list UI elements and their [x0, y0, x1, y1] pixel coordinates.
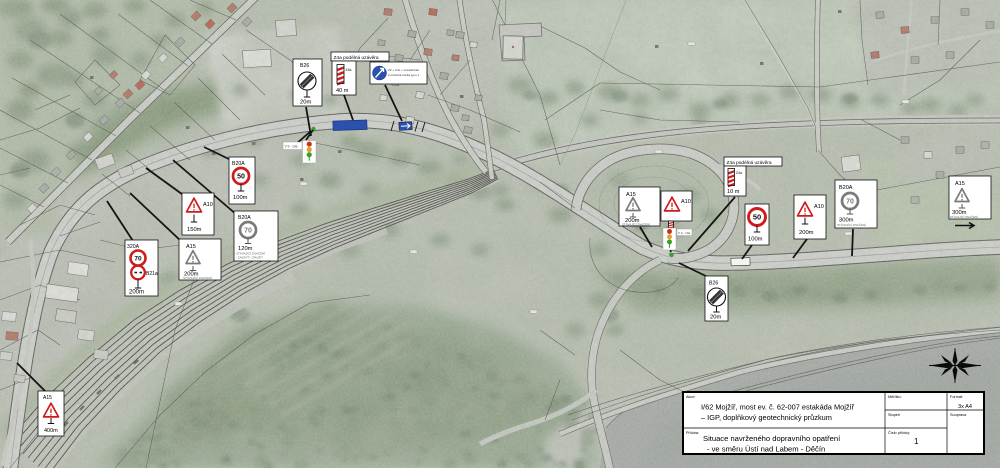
svg-text:3x A4: 3x A4 — [958, 404, 972, 410]
svg-text:Z4a: Z4a — [736, 171, 742, 175]
svg-text:B20A: B20A — [232, 161, 245, 167]
svg-text:10 m: 10 m — [727, 189, 740, 195]
svg-text:V 9 - 10a: V 9 - 10a — [285, 144, 298, 148]
svg-text:Formát:: Formát: — [950, 395, 963, 399]
svg-text:STÁVAJÍCÍ ZNAČENÍ: STÁVAJÍCÍ ZNAČENÍ — [622, 221, 650, 226]
svg-text:20m: 20m — [710, 315, 721, 321]
svg-text:200m: 200m — [799, 230, 814, 236]
svg-text:70: 70 — [846, 199, 854, 206]
svg-text:B26: B26 — [300, 63, 309, 69]
svg-text:A10: A10 — [203, 202, 213, 208]
svg-text:70: 70 — [244, 228, 252, 235]
svg-text:A10: A10 — [814, 204, 824, 210]
svg-text:STÁVAJÍCÍ ZNAČENÍ: STÁVAJÍCÍ ZNAČENÍ — [183, 275, 212, 280]
svg-text:20m: 20m — [300, 100, 311, 106]
svg-text:STÁVAJÍCÍ ZNAČENÍ: STÁVAJÍCÍ ZNAČENÍ — [950, 214, 978, 219]
svg-text:B21a: B21a — [146, 271, 158, 277]
svg-text:A10: A10 — [681, 199, 691, 205]
svg-text:STÁVAJÍCÍ ZNAČENÍ: STÁVAJÍCÍ ZNAČENÍ — [837, 222, 866, 227]
svg-text:200m: 200m — [129, 290, 144, 296]
svg-text:B20A: B20A — [238, 215, 251, 221]
svg-text:320A: 320A — [127, 244, 140, 250]
svg-text:A15: A15 — [955, 181, 965, 187]
svg-text:100m: 100m — [233, 195, 248, 201]
svg-text:Z4a podélná uzávěra: Z4a podélná uzávěra — [334, 55, 379, 61]
svg-text:1: 1 — [914, 437, 919, 446]
svg-text:Stupeň: Stupeň — [888, 413, 900, 417]
svg-text:40 m: 40 m — [336, 88, 349, 94]
svg-text:A15: A15 — [43, 395, 52, 401]
svg-text:Situace navrženého dopravního: Situace navrženého dopravního opatření — [703, 434, 841, 443]
svg-text:I/62 Mojžíř, most ev. č. 62-00: I/62 Mojžíř, most ev. č. 62-007 estakáda… — [701, 403, 855, 412]
svg-text:- ve směru Ústí nad Labem - Dě: - ve směru Ústí nad Labem - Děčín — [707, 445, 825, 454]
svg-text:Příloha:: Příloha: — [686, 431, 699, 435]
svg-text:70: 70 — [134, 255, 142, 262]
svg-text:50: 50 — [753, 213, 761, 222]
svg-text:150m: 150m — [187, 227, 202, 233]
svg-text:Z4a: Z4a — [346, 68, 352, 72]
svg-text:Číslo přílohy:: Číslo přílohy: — [888, 430, 910, 435]
svg-text:– IGP, doplňkový geotechnický: – IGP, doplňkový geotechnický průzkum — [701, 413, 832, 422]
svg-text:B26: B26 — [709, 281, 718, 287]
svg-text:A15: A15 — [186, 244, 196, 250]
svg-text:A15: A15 — [626, 192, 636, 198]
svg-text:400m: 400m — [44, 428, 58, 434]
svg-text:B20A: B20A — [839, 185, 853, 191]
svg-text:Akce:: Akce: — [686, 395, 696, 399]
svg-text:V 9 - 10a: V 9 - 10a — [678, 231, 691, 235]
svg-text:Měřítko:: Měřítko: — [888, 395, 902, 399]
svg-text:Z2 + C4c + zezadu/zak: Z2 + C4c + zezadu/zak — [388, 68, 419, 72]
svg-text:- ZAKRÝT / ZRUŠIT: - ZAKRÝT / ZRUŠIT — [236, 255, 263, 260]
svg-text:Z4a podélná uzávěra: Z4a podélná uzávěra — [727, 160, 772, 166]
svg-text:Souprava: Souprava — [950, 413, 967, 417]
svg-text:100m: 100m — [748, 237, 763, 243]
svg-text:50: 50 — [237, 174, 245, 181]
svg-text:2 odrazná světla typu 1: 2 odrazná světla typu 1 — [388, 73, 419, 77]
